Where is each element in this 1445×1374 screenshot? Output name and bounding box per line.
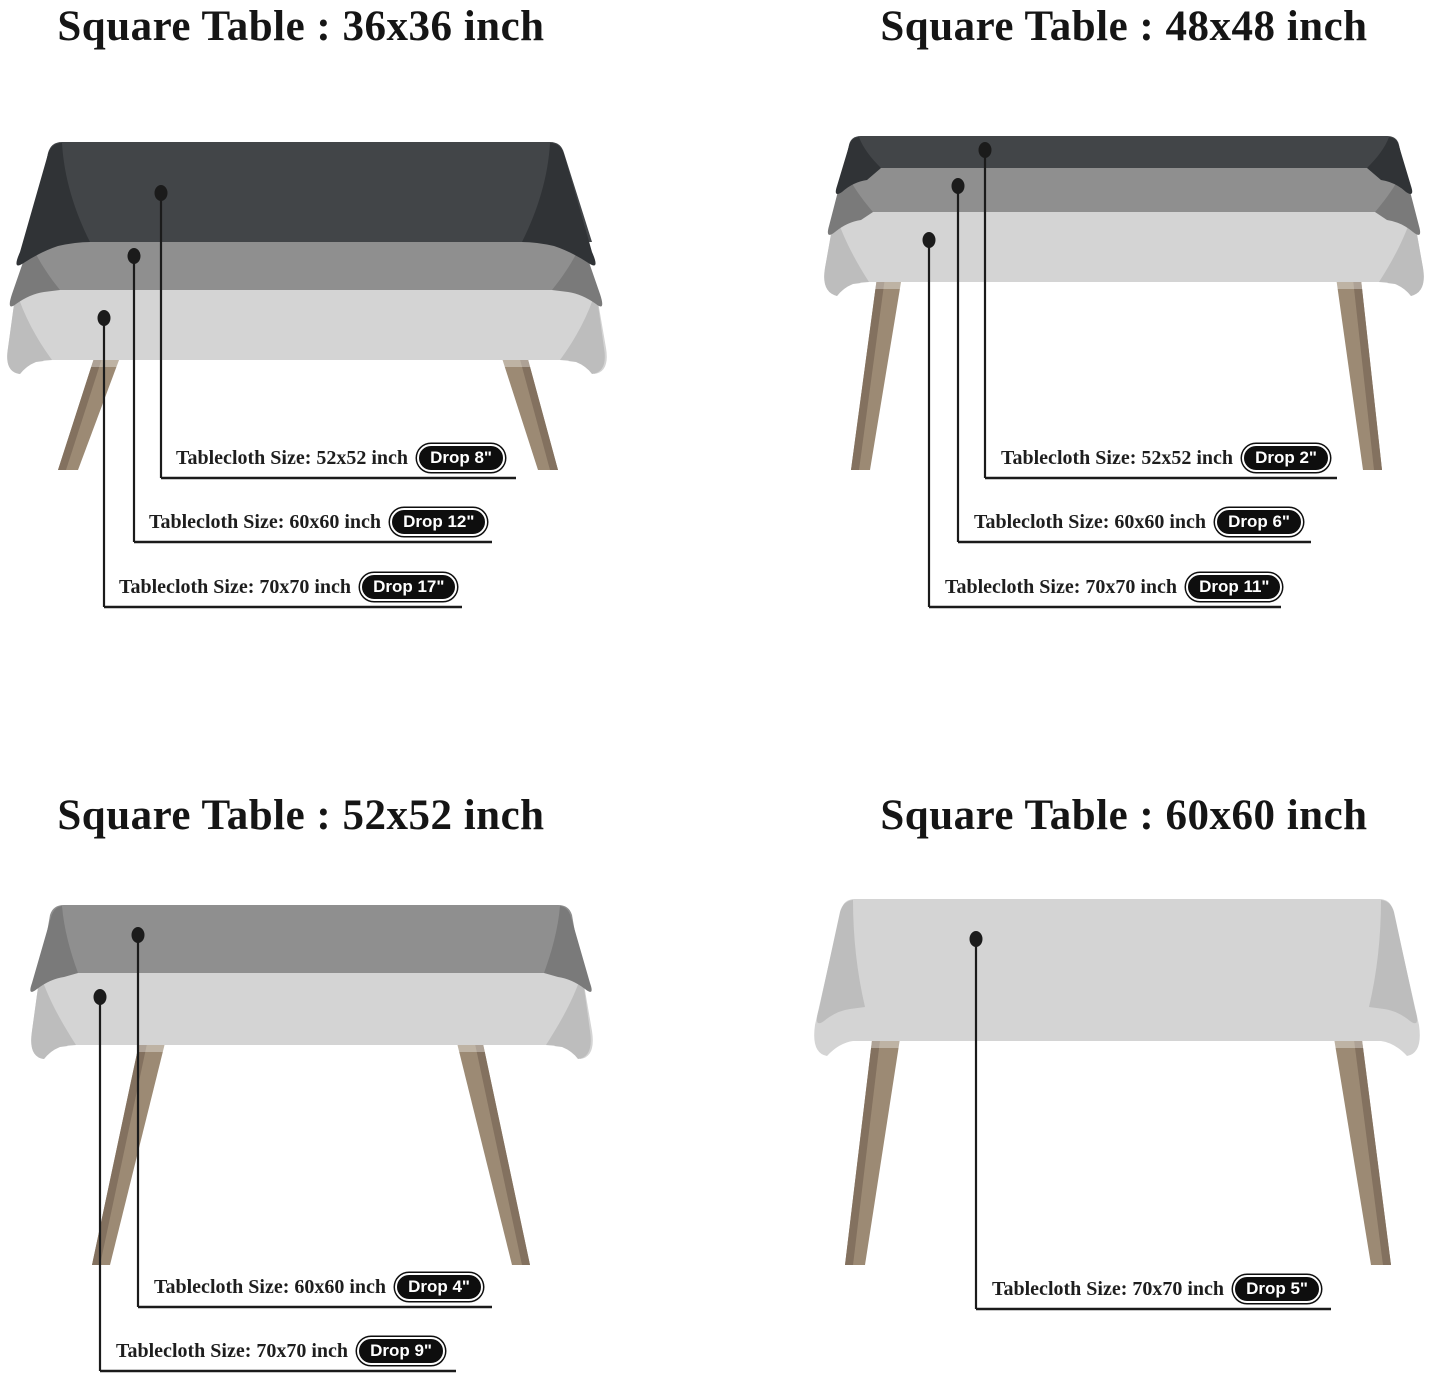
panel-table-60x60: Square Table : 60x60 inch Tablecloth Siz… (723, 687, 1445, 1374)
cloth-60x60-front (16, 242, 596, 290)
cloth-52x52-front (844, 136, 1404, 168)
tablecloth-size-label: Tablecloth Size: 70x70 inch Drop 9" (116, 1337, 445, 1365)
tablecloth-size-text: Tablecloth Size: 70x70 inch (945, 576, 1177, 599)
callout-dot (952, 178, 965, 194)
tablecloth-size-label: Tablecloth Size: 60x60 inch Drop 12" (149, 508, 487, 536)
tablecloth-size-label: Tablecloth Size: 52x52 inch Drop 2" (1001, 444, 1330, 472)
cloth-70x70-hem (853, 282, 1395, 289)
drop-badge: Drop 9" (357, 1337, 445, 1365)
drop-badge: Drop 12" (390, 508, 487, 536)
panel-table-52x52: Square Table : 52x52 inch Tablecloth Siz… (0, 687, 722, 1374)
drop-badge: Drop 2" (1242, 444, 1330, 472)
drop-badge: Drop 17" (360, 573, 457, 601)
tablecloth-size-text: Tablecloth Size: 60x60 inch (149, 511, 381, 534)
callout-dot (98, 310, 111, 326)
tablecloth-size-label: Tablecloth Size: 70x70 inch Drop 17" (119, 573, 457, 601)
tablecloth-size-label: Tablecloth Size: 60x60 inch Drop 6" (974, 508, 1303, 536)
tablecloth-size-label: Tablecloth Size: 70x70 inch Drop 5" (992, 1275, 1321, 1303)
drop-badge: Drop 4" (395, 1273, 483, 1301)
tablecloth-size-text: Tablecloth Size: 70x70 inch (119, 576, 351, 599)
tablecloth-size-text: Tablecloth Size: 60x60 inch (154, 1276, 386, 1299)
table-leg-right-shade (474, 1039, 530, 1265)
drop-badge: Drop 5" (1233, 1275, 1321, 1303)
callout-dot (970, 931, 983, 947)
tablecloth-size-text: Tablecloth Size: 60x60 inch (974, 511, 1206, 534)
tablecloth-size-guide: { "colors": { "background": "#ffffff", "… (0, 0, 1445, 1374)
callout-dot (979, 142, 992, 158)
cloth-70x70-hem (847, 1041, 1387, 1048)
cloth-70x70-hem (60, 1045, 562, 1052)
tablecloth-size-text: Tablecloth Size: 70x70 inch (992, 1278, 1224, 1301)
tablecloth-size-label: Tablecloth Size: 60x60 inch Drop 4" (154, 1273, 483, 1301)
tablecloth-size-label: Tablecloth Size: 52x52 inch Drop 8" (176, 444, 505, 472)
cloth-52x52-front (30, 142, 592, 242)
panel-table-36x36: Square Table : 36x36 inch Tablecloth Siz… (0, 0, 722, 687)
cloth-60x60-front (40, 905, 582, 973)
tablecloth-size-text: Tablecloth Size: 70x70 inch (116, 1340, 348, 1363)
tablecloth-size-text: Tablecloth Size: 52x52 inch (176, 447, 408, 470)
drop-badge: Drop 8" (417, 444, 505, 472)
callout-dot (155, 185, 168, 201)
drop-badge: Drop 11" (1186, 573, 1282, 601)
callout-dot (132, 927, 145, 943)
callout-dot (128, 248, 141, 264)
callout-dot (923, 232, 936, 248)
table-52x52-illustration (0, 687, 722, 1374)
callout-dot (94, 989, 107, 1005)
cloth-60x60-front (835, 168, 1413, 212)
tablecloth-size-label: Tablecloth Size: 70x70 inch Drop 11" (945, 573, 1282, 601)
tablecloth-size-text: Tablecloth Size: 52x52 inch (1001, 447, 1233, 470)
table-60x60-illustration (723, 687, 1445, 1374)
drop-badge: Drop 6" (1215, 508, 1303, 536)
cloth-70x70-front (814, 899, 1420, 1056)
panel-table-48x48: Square Table : 48x48 inch Tablecloth Siz… (723, 0, 1445, 687)
cloth-70x70-hem (36, 360, 576, 367)
